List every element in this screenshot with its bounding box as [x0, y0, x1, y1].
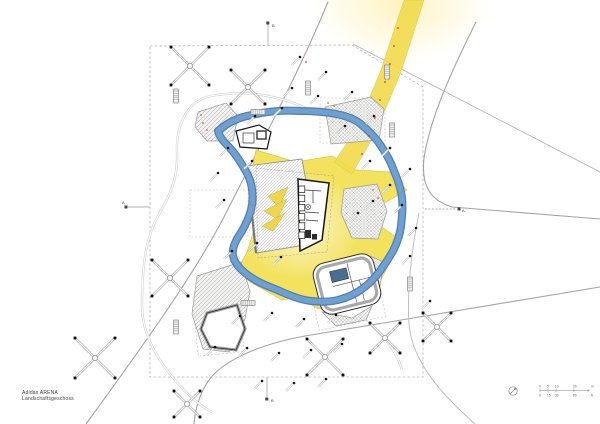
- tree-canopy-icon: [170, 46, 211, 87]
- bench-icon: [241, 301, 255, 306]
- lamp-icon: [362, 160, 371, 169]
- tree-canopy-icon: [369, 322, 402, 355]
- svg-text:A: A: [462, 208, 465, 213]
- svg-text:B: B: [272, 23, 275, 28]
- svg-text:ft: ft: [591, 394, 593, 398]
- lamp-icon: [254, 380, 263, 389]
- section-marker: A: [425, 208, 465, 214]
- svg-text:20: 20: [573, 385, 577, 389]
- bench-icon: [408, 277, 413, 291]
- section-marker: B: [265, 377, 274, 403]
- lamp-icon: [292, 56, 301, 65]
- bench-icon: [174, 89, 179, 103]
- drawing-title: Landschaftsgeschoss: [22, 396, 74, 402]
- north-arrow: [509, 387, 517, 395]
- bench-icon: [251, 110, 265, 115]
- tree-canopy-icon: [422, 312, 453, 343]
- svg-text:0: 0: [539, 385, 541, 389]
- lamp-icon: [402, 255, 411, 264]
- scale-bar: 051020m0153060ft: [539, 385, 594, 398]
- site-plan-svg: BBAA051020m0153060ft: [0, 0, 600, 424]
- svg-text:15: 15: [547, 394, 551, 398]
- drawing-sheet: BBAA051020m0153060ft Adidas ARENA Landsc…: [0, 0, 600, 424]
- lamp-icon: [318, 71, 327, 80]
- lamp-icon: [271, 352, 280, 361]
- svg-text:60: 60: [573, 394, 577, 398]
- tree-canopy-icon: [230, 69, 267, 106]
- svg-text:B: B: [271, 398, 274, 403]
- lamp-icon: [286, 382, 295, 391]
- tree-canopy-icon: [151, 259, 190, 298]
- tree-canopy-icon: [306, 338, 345, 377]
- svg-text:0: 0: [539, 394, 541, 398]
- lamp-icon: [402, 168, 411, 177]
- svg-text:5: 5: [547, 385, 549, 389]
- bench-icon: [306, 81, 311, 95]
- svg-text:30: 30: [555, 394, 559, 398]
- lamp-icon: [344, 91, 353, 100]
- tree-canopy-icon: [74, 337, 117, 380]
- lamp-icon: [216, 199, 225, 208]
- svg-text:A: A: [122, 200, 125, 205]
- lamp-icon: [318, 378, 327, 387]
- title-block: Adidas ARENA Landschaftsgeschoss: [22, 390, 74, 402]
- section-marker: B: [266, 22, 275, 47]
- lamp-icon: [310, 95, 319, 104]
- bench-icon: [390, 123, 395, 137]
- bench-icon: [385, 65, 390, 79]
- lamp-icon: [210, 172, 219, 181]
- lamp-icon: [303, 349, 312, 358]
- bench-icon: [174, 320, 179, 334]
- lamp-icon: [264, 312, 273, 321]
- svg-text:10: 10: [555, 385, 559, 389]
- lamp-icon: [296, 318, 305, 327]
- svg-text:m: m: [591, 385, 594, 389]
- section-marker: A: [122, 200, 150, 209]
